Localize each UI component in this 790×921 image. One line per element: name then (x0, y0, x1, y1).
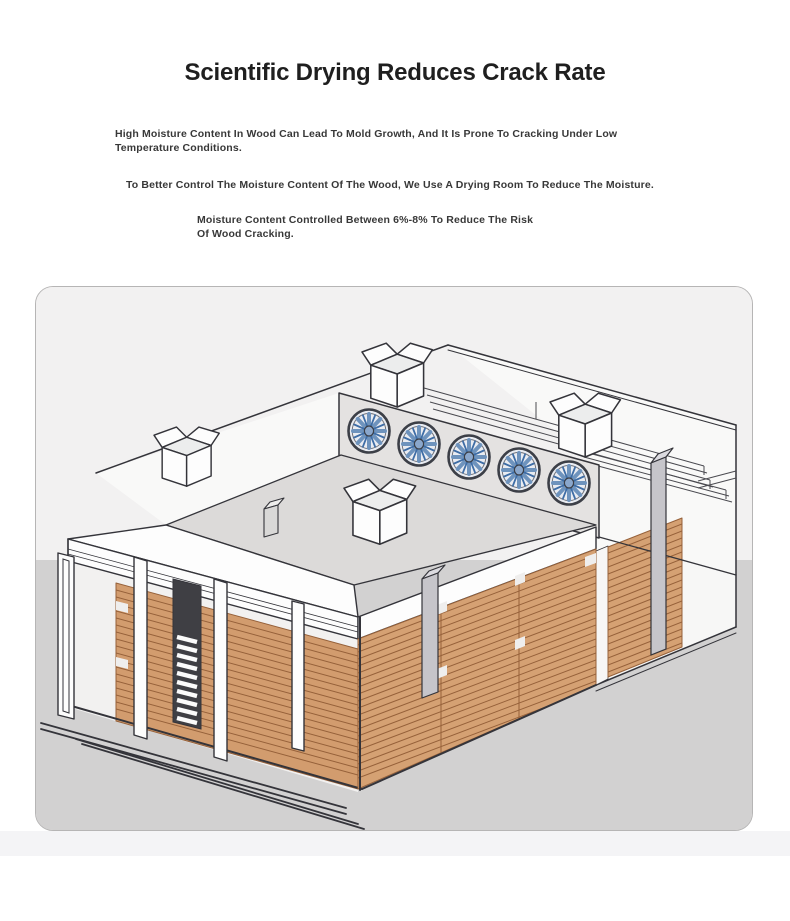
exhaust-fan (449, 436, 490, 479)
drying-room-isometric-diagram (36, 287, 753, 831)
exhaust-fan (399, 423, 440, 466)
door-post (292, 601, 304, 751)
paragraph-line: Of Wood Cracking. (197, 228, 533, 242)
door-post (214, 579, 227, 761)
paragraph-line: Moisture Content Controlled Between 6%-8… (197, 214, 533, 228)
ladder (173, 579, 201, 729)
paragraph-line: Temperature Conditions. (115, 142, 617, 156)
exhaust-fan (499, 449, 540, 492)
footer-strip (0, 831, 790, 856)
paragraph-moisture-target: Moisture Content Controlled Between 6%-8… (197, 214, 533, 241)
door-frame-left (58, 553, 74, 719)
drying-room-illustration-card (35, 286, 753, 831)
door-post (134, 557, 147, 739)
paragraph-drying-room: To Better Control The Moisture Content O… (126, 179, 654, 193)
paragraph-line: High Moisture Content In Wood Can Lead T… (115, 128, 617, 142)
page-title: Scientific Drying Reduces Crack Rate (0, 58, 790, 88)
paragraph-mold-risk: High Moisture Content In Wood Can Lead T… (115, 128, 617, 155)
exhaust-fan (349, 410, 390, 453)
exhaust-fan (549, 462, 590, 505)
paragraph-line: To Better Control The Moisture Content O… (126, 179, 654, 193)
